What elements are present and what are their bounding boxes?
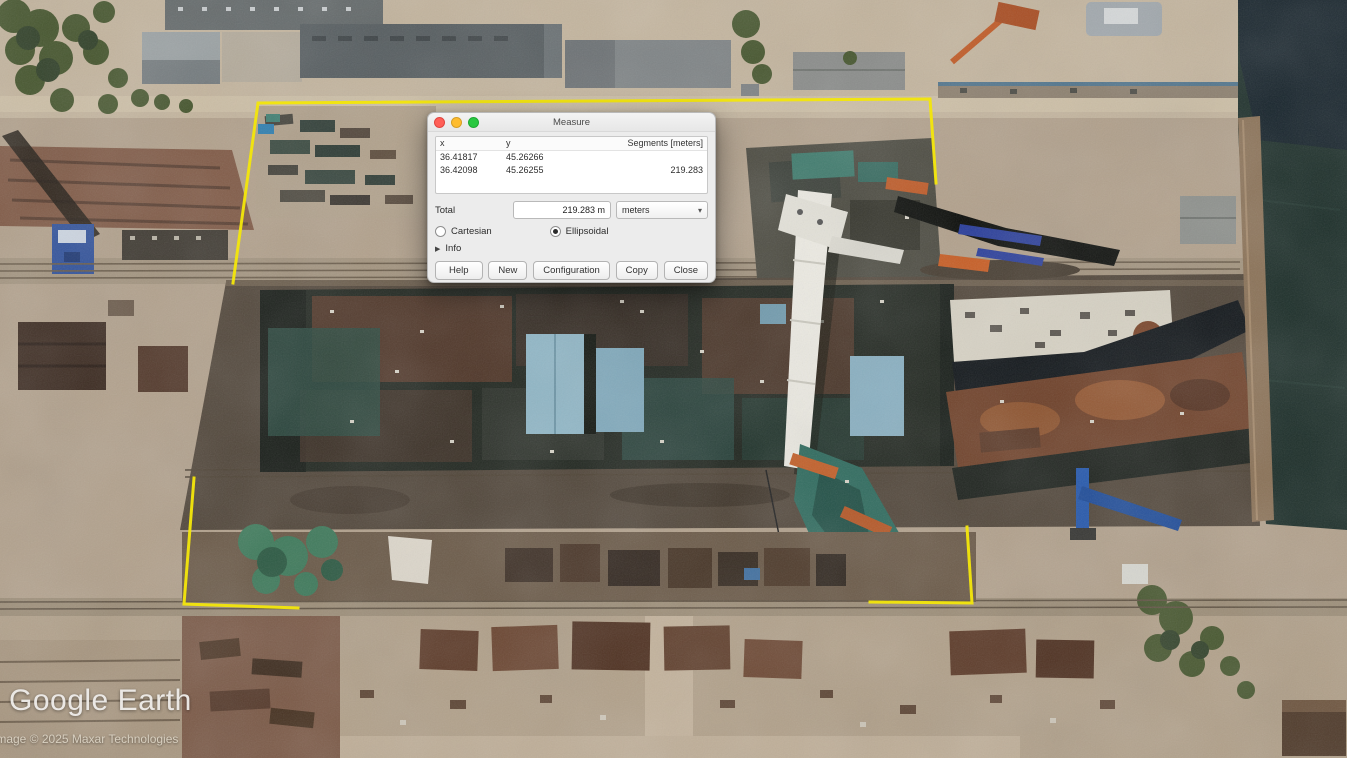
zoom-window-button[interactable] [468, 117, 479, 128]
point-x: 36.41817 [440, 151, 506, 164]
configuration-button[interactable]: Configuration [533, 261, 610, 280]
radio-cartesian-label: Cartesian [451, 226, 492, 237]
google-earth-logo: Google Earth [9, 684, 192, 718]
unit-selected-value: meters [622, 205, 650, 215]
info-expander[interactable]: ▶ Info [435, 243, 708, 254]
imagery-attribution: Image © 2025 Maxar Technologies [0, 732, 178, 746]
column-x: x [440, 137, 506, 150]
info-label: Info [445, 243, 461, 254]
copy-button[interactable]: Copy [616, 261, 658, 280]
radio-circle-icon [435, 226, 446, 237]
table-row[interactable]: 36.41817 45.26266 [436, 151, 707, 164]
total-input[interactable] [513, 201, 611, 219]
column-segments: Segments [meters] [617, 137, 703, 150]
table-row[interactable]: 36.42098 45.26255 219.283 [436, 164, 707, 177]
triangle-right-icon: ▶ [435, 245, 440, 253]
measurements-table[interactable]: x y Segments [meters] 36.41817 45.26266 … [435, 136, 708, 194]
radio-dot-icon [550, 226, 561, 237]
chevron-down-icon: ▾ [698, 206, 702, 215]
table-header: x y Segments [meters] [436, 137, 707, 151]
new-button[interactable]: New [488, 261, 527, 280]
measure-dialog: Measure x y Segments [meters] 36.41817 4… [427, 112, 716, 283]
point-y: 45.26266 [506, 151, 617, 164]
radio-cartesian[interactable]: Cartesian [435, 226, 492, 237]
help-button[interactable]: Help [435, 261, 483, 280]
close-window-button[interactable] [434, 117, 445, 128]
total-label: Total [435, 205, 513, 216]
segment-length: 219.283 [617, 164, 703, 177]
column-y: y [506, 137, 617, 150]
unit-select[interactable]: meters ▾ [616, 201, 708, 219]
minimize-window-button[interactable] [451, 117, 462, 128]
close-button[interactable]: Close [664, 261, 708, 280]
radio-ellipsoidal-label: Ellipsoidal [566, 226, 609, 237]
google-earth-viewport: Measure x y Segments [meters] 36.41817 4… [0, 0, 1347, 758]
radio-ellipsoidal[interactable]: Ellipsoidal [550, 226, 609, 237]
dialog-titlebar[interactable]: Measure [428, 113, 715, 132]
point-x: 36.42098 [440, 164, 506, 177]
segment-length [617, 151, 703, 164]
point-y: 45.26255 [506, 164, 617, 177]
